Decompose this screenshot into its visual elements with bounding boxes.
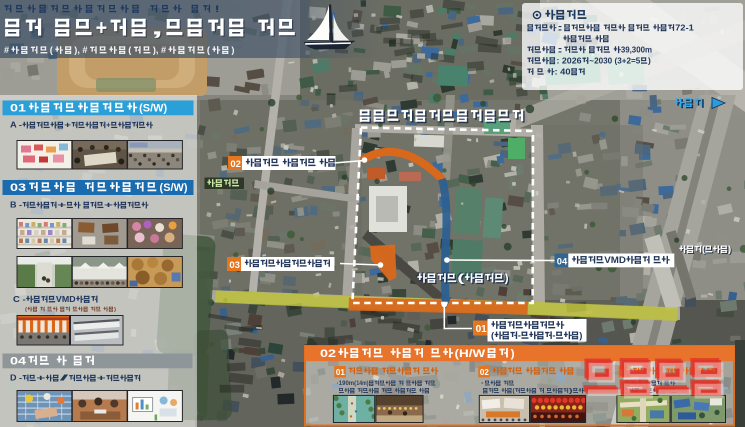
svg-text:02: 02 <box>480 368 489 377</box>
svg-text:(: ( <box>207 45 210 55</box>
svg-text:,: , <box>151 16 163 39</box>
svg-text:04: 04 <box>557 255 568 266</box>
svg-text:A -: A - <box>10 121 22 130</box>
svg-text:): ) <box>569 388 573 395</box>
svg-text:#: # <box>4 45 9 55</box>
svg-text:): ) <box>728 244 731 254</box>
svg-text:+: + <box>96 16 108 39</box>
svg-text:VMD: VMD <box>56 294 76 304</box>
svg-text:01: 01 <box>476 324 488 335</box>
svg-text:), #: ), # <box>153 45 166 55</box>
svg-text:-: - <box>552 330 555 340</box>
svg-text:01: 01 <box>336 368 345 377</box>
svg-text:(S/W): (S/W) <box>139 102 167 114</box>
svg-text:), #: ), # <box>74 45 87 55</box>
svg-text:(: ( <box>702 244 705 254</box>
svg-text::: : <box>556 45 563 54</box>
svg-text:(: ( <box>50 45 53 55</box>
svg-text:+: + <box>104 201 114 210</box>
svg-text:D -: D - <box>10 374 22 383</box>
svg-text:+: + <box>64 121 71 130</box>
svg-text:01: 01 <box>10 102 27 114</box>
svg-text:(: ( <box>25 307 27 313</box>
svg-text:+: + <box>57 201 67 210</box>
svg-text::: : <box>556 23 563 32</box>
svg-text:14m): 14m) <box>356 380 368 387</box>
svg-text:: 2026: : 2026 <box>556 56 582 65</box>
svg-text:(: ( <box>128 45 131 55</box>
svg-text:C -: C - <box>13 294 26 304</box>
svg-text:(: ( <box>457 273 465 285</box>
svg-text:04: 04 <box>10 355 27 367</box>
svg-text:: 40: : 40 <box>554 67 571 76</box>
svg-text:02: 02 <box>230 159 241 170</box>
svg-text:B -: B - <box>10 201 22 210</box>
svg-text:(S/W): (S/W) <box>160 182 188 194</box>
svg-text:39,300m: 39,300m <box>621 45 652 54</box>
svg-text:-: - <box>518 330 521 340</box>
svg-text:03: 03 <box>229 260 240 271</box>
svg-text:~2030 (3+2=5: ~2030 (3+2=5 <box>589 56 641 65</box>
svg-text:·190m(: ·190m( <box>337 380 357 387</box>
svg-text:·: · <box>481 380 485 387</box>
svg-text:): ) <box>114 307 116 313</box>
svg-text:02: 02 <box>320 348 336 360</box>
svg-text:+: + <box>106 121 111 130</box>
svg-text:): ) <box>231 45 234 55</box>
svg-text:): ) <box>505 273 509 285</box>
svg-text:+: + <box>36 374 46 383</box>
svg-text:): ) <box>511 348 515 360</box>
svg-text:): ) <box>579 330 582 340</box>
svg-text:(H/W: (H/W <box>455 348 486 360</box>
svg-text:+: + <box>97 374 107 383</box>
svg-text:!: ! <box>214 4 220 14</box>
svg-text:): ) <box>648 56 651 65</box>
svg-text:VMD: VMD <box>604 255 626 265</box>
svg-text:03: 03 <box>10 182 26 194</box>
svg-text:72-1: 72-1 <box>675 23 694 32</box>
